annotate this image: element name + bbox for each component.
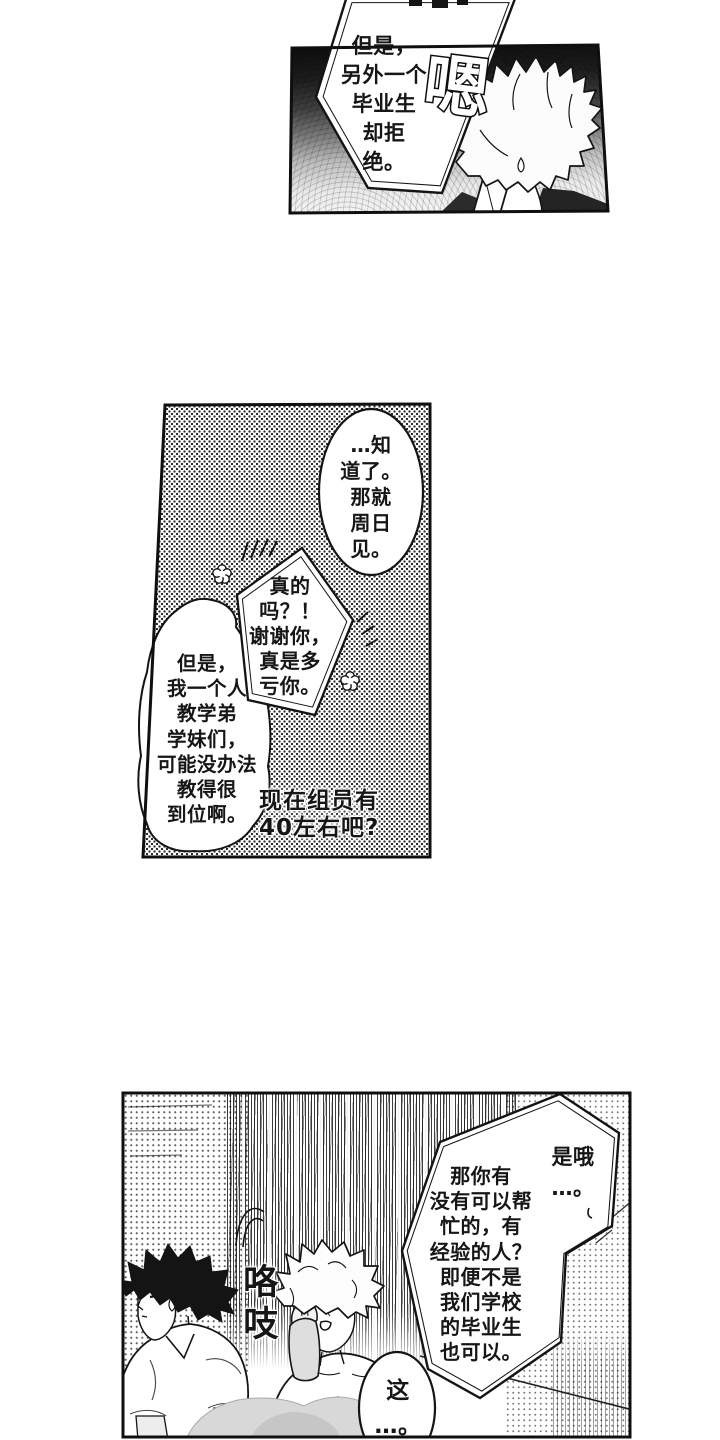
emphasis-lines [242, 539, 277, 561]
caption-line: 现在组员有 [259, 788, 404, 815]
speech-line: 道了。 [318, 458, 424, 484]
speech-line: 可能没办法 [141, 752, 273, 777]
open-mouth [320, 1321, 331, 1330]
speech-line: 见。 [318, 536, 424, 562]
raised-forearm [289, 1319, 320, 1381]
cut-text-mark [432, 0, 448, 8]
speech-line: 吗？！ [239, 599, 341, 624]
speech-line: 到位啊。 [141, 802, 273, 827]
speech-line: 却拒 [318, 119, 450, 148]
speech-text-but: 但是， 我一个人 教学弟 学妹们， 可能没办法 教得很 到位啊。 [141, 651, 273, 827]
speech-line: 教得很 [141, 777, 273, 802]
speech-line: 但是， [141, 651, 273, 676]
cut-text-mark [409, 0, 422, 6]
speech-line: 谢谢你， [239, 624, 341, 649]
speech-line: …。 [368, 1409, 428, 1440]
speech-line: 周日 [318, 510, 424, 536]
line-art: 嗯 [0, 0, 720, 1440]
speech-line: 的毕业生 [420, 1315, 542, 1340]
speech-line: 那就 [318, 484, 424, 510]
speech-line: 即便不是 [420, 1265, 542, 1290]
sfx-char: 咯 [238, 1262, 284, 1304]
sfx-char: 吱 [238, 1304, 284, 1346]
speech-text-know: …知 道了。 那就 周日 见。 [318, 432, 424, 562]
caption-line: 40左右吧? [259, 815, 404, 842]
speech-line: …知 [318, 432, 424, 458]
speech-line: 真的 [239, 574, 341, 599]
speech-line: 这 [368, 1374, 428, 1409]
speech-text-ask: 那你有 没有可以帮 忙的，有 经验的人？ 即便不是 我们学校 的毕业生 也可以。 [420, 1164, 542, 1366]
speech-line: 经验的人？ [420, 1240, 542, 1265]
cut-text-mark [457, 0, 468, 5]
speech-line: 我一个人 [141, 676, 273, 701]
speech-line: 另外一个 [318, 61, 450, 90]
black-hair [118, 1244, 238, 1322]
sfx-scratch: 咯 吱 [238, 1262, 284, 1346]
speech-line: 但是， [318, 32, 450, 61]
speech-line: 也可以。 [420, 1340, 542, 1365]
emphasis-lines [357, 612, 378, 646]
speech-line: 毕业生 [318, 90, 450, 119]
speech-line: 是哦 [534, 1142, 612, 1173]
blonde-hair [272, 1240, 384, 1318]
speech-text-isok: 是哦 …。 [534, 1142, 612, 1204]
caption-members: 现在组员有 40左右吧? [259, 788, 404, 842]
speech-text-this: 这 …。 [368, 1374, 428, 1440]
speech-line: 那你有 [420, 1164, 542, 1189]
scratch-swoosh [236, 1209, 264, 1247]
speech-text-refuse: 但是， 另外一个 毕业生 却拒 绝。 [318, 32, 450, 177]
speech-line: …。 [534, 1173, 612, 1204]
shoulder-shadow [534, 188, 608, 213]
manga-page: 嗯 [0, 0, 720, 1440]
speech-line: 忙的，有 [420, 1214, 542, 1239]
speech-line: 教学弟 [141, 701, 273, 726]
flower-doodle [341, 672, 359, 690]
speech-line: 没有可以帮 [420, 1189, 542, 1214]
speech-line: 学妹们， [141, 727, 273, 752]
speech-line: 我们学校 [420, 1290, 542, 1315]
speech-line: 绝。 [318, 148, 450, 177]
flower-doodle [213, 565, 231, 583]
